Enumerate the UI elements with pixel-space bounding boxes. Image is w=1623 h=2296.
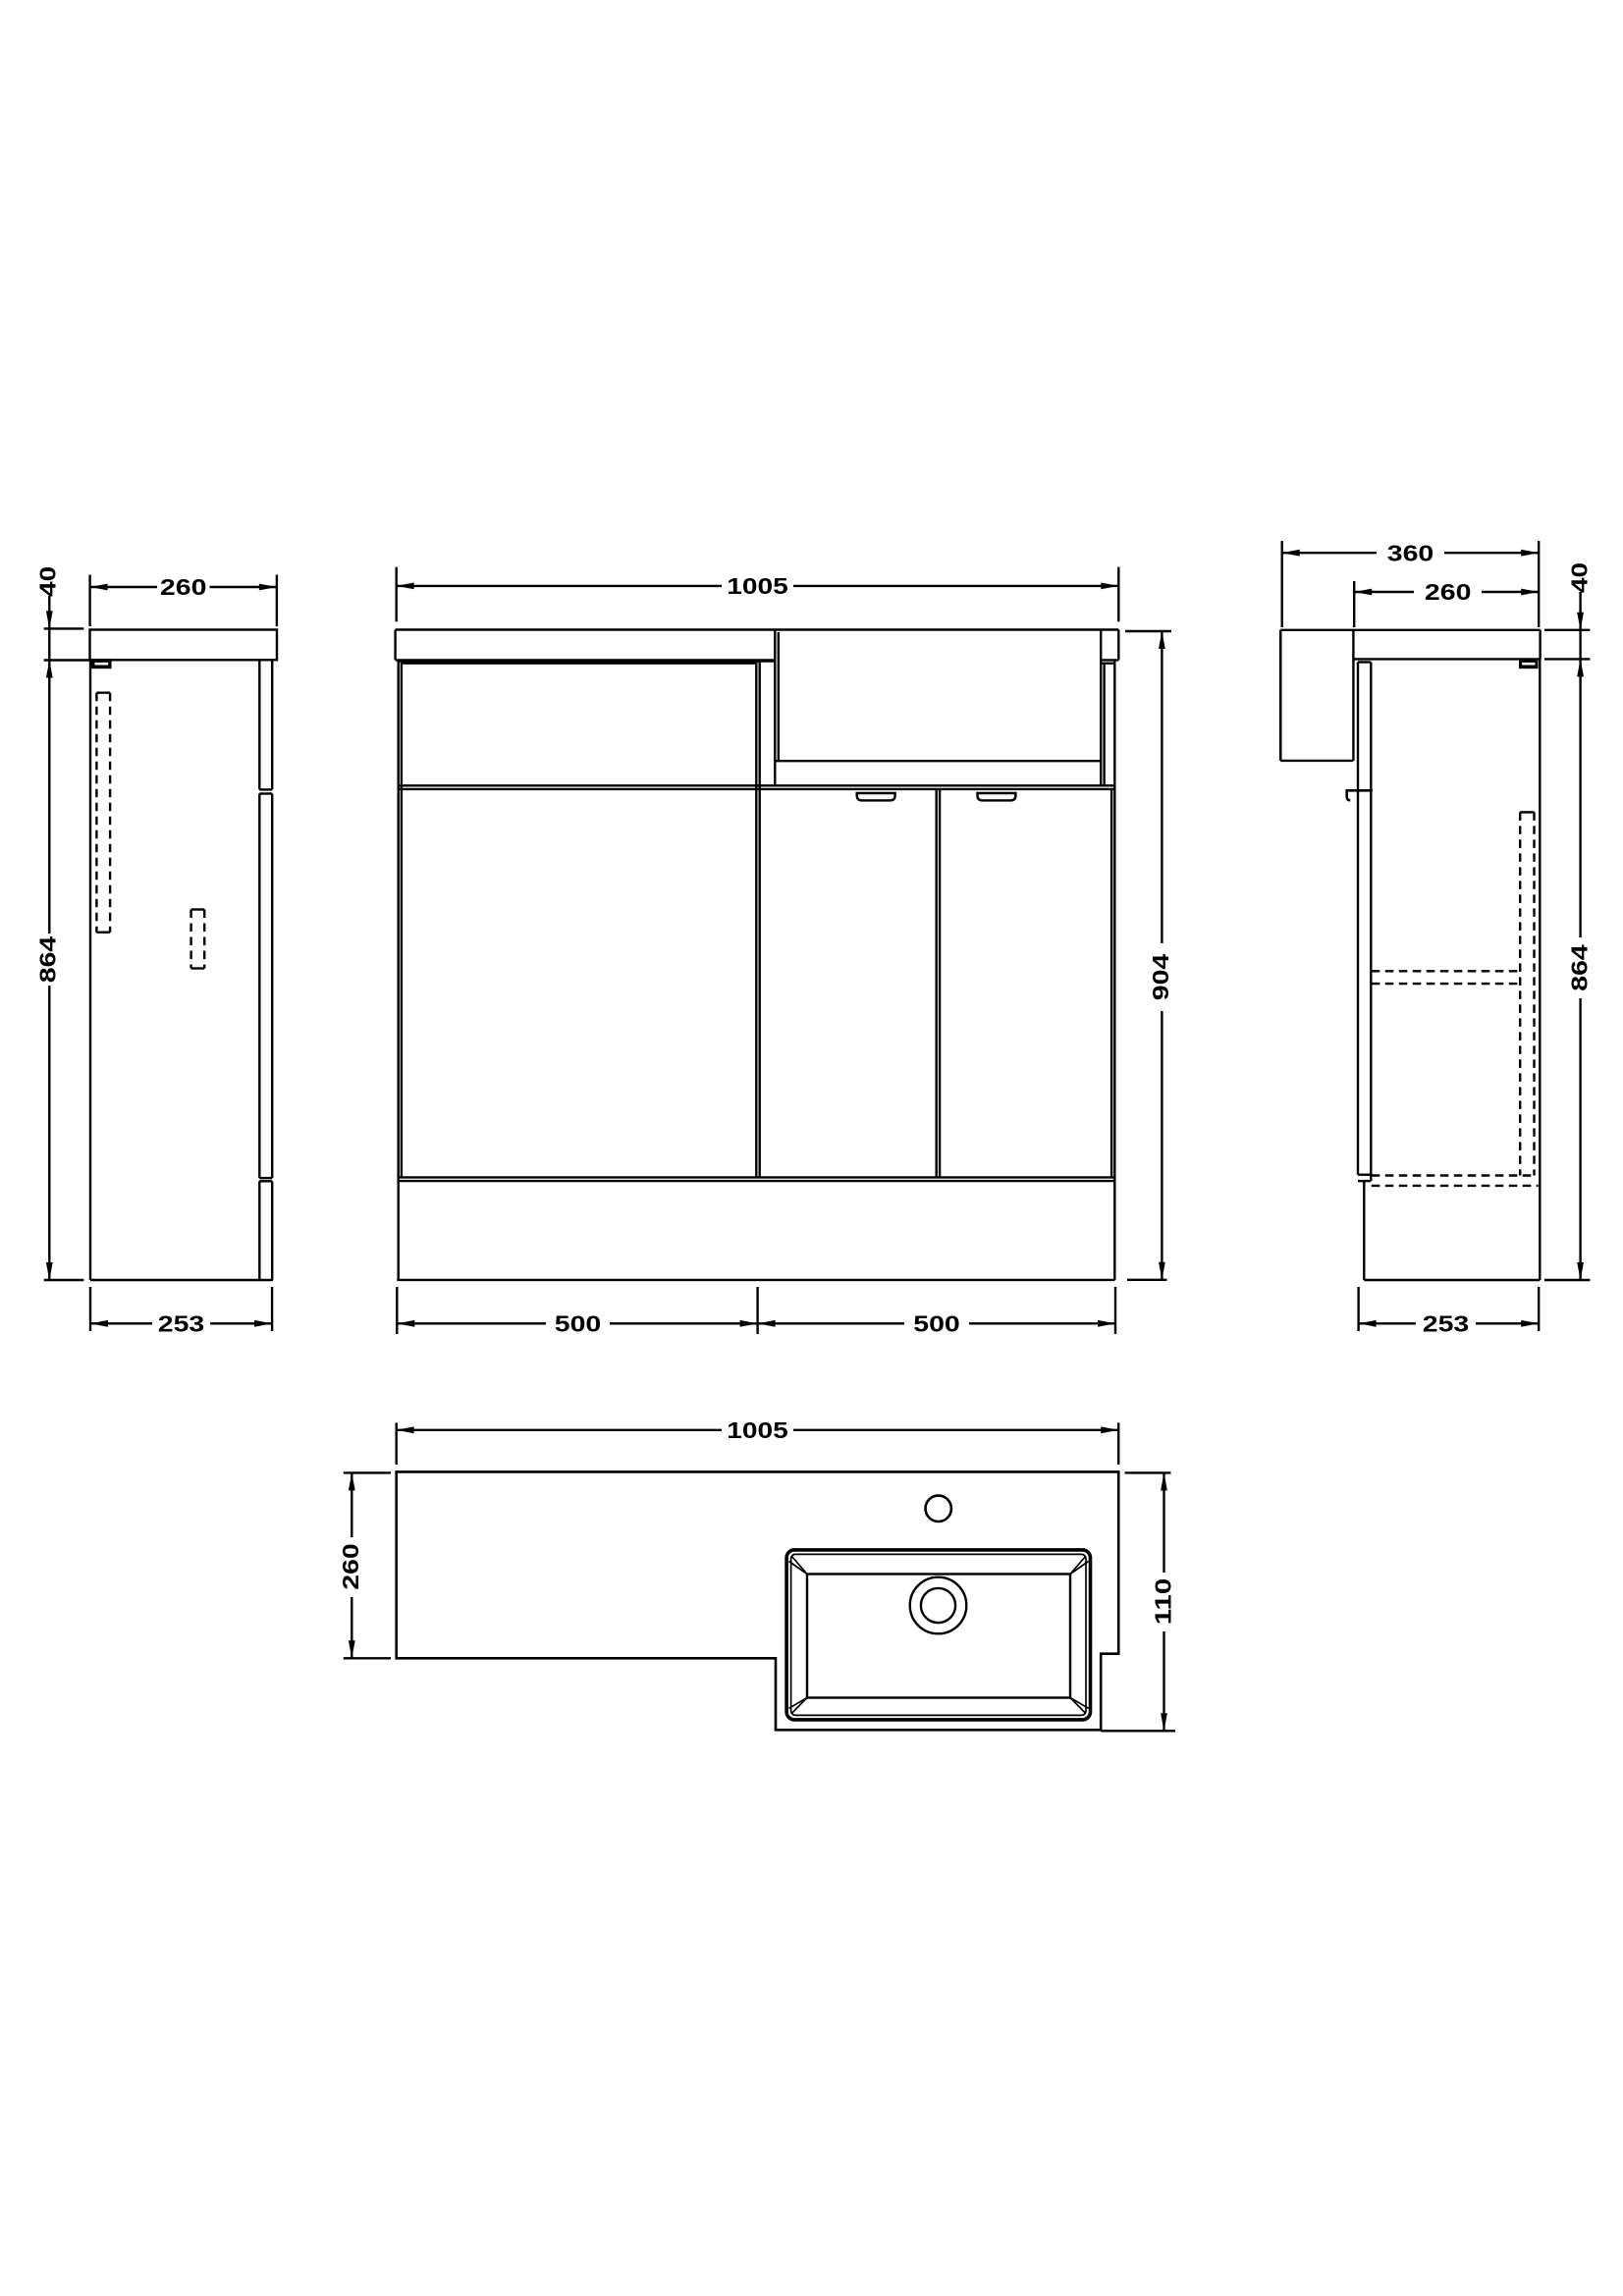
svg-text:253: 253 <box>158 1311 205 1337</box>
svg-text:1005: 1005 <box>727 573 788 599</box>
svg-text:253: 253 <box>1423 1311 1470 1337</box>
svg-text:40: 40 <box>1567 562 1593 593</box>
svg-text:1005: 1005 <box>727 1417 788 1443</box>
svg-text:500: 500 <box>913 1311 960 1337</box>
svg-text:110: 110 <box>1151 1578 1176 1626</box>
svg-text:40: 40 <box>35 566 61 597</box>
svg-text:260: 260 <box>1425 579 1472 605</box>
svg-text:864: 864 <box>35 936 61 984</box>
svg-text:260: 260 <box>160 574 207 600</box>
svg-text:904: 904 <box>1148 954 1173 1001</box>
svg-text:500: 500 <box>555 1311 602 1337</box>
svg-text:864: 864 <box>1567 944 1593 991</box>
svg-text:360: 360 <box>1387 540 1434 565</box>
svg-text:260: 260 <box>338 1543 363 1590</box>
